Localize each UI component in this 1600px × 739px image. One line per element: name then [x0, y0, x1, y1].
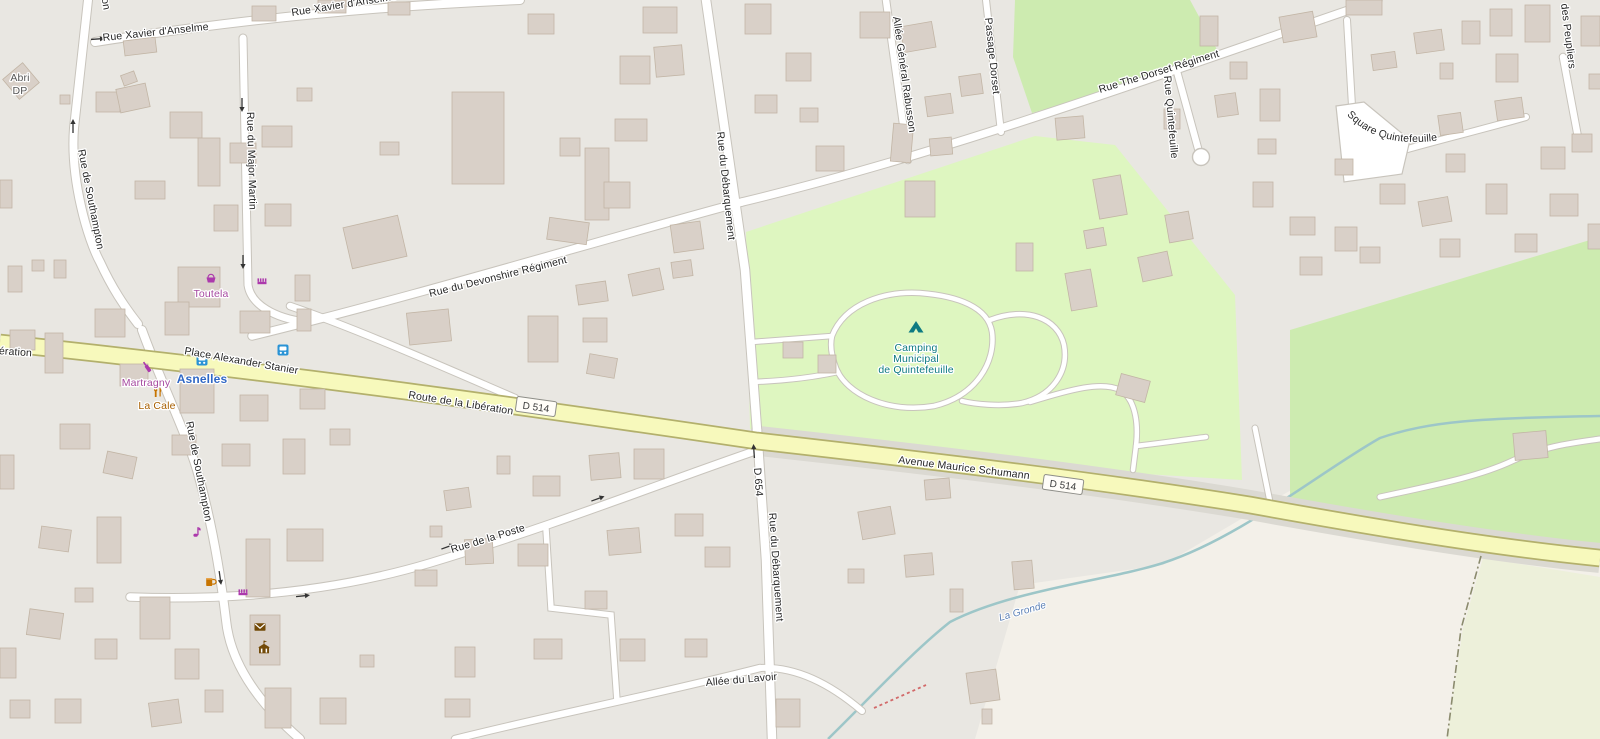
- building: [1495, 97, 1525, 121]
- building: [620, 639, 645, 661]
- building: [1012, 560, 1034, 590]
- building: [10, 700, 30, 718]
- building: [265, 688, 291, 728]
- building: [452, 92, 504, 184]
- building: [45, 333, 63, 373]
- building: [240, 311, 270, 333]
- building: [283, 439, 305, 474]
- building: [818, 355, 836, 373]
- building: [607, 528, 641, 556]
- building: [783, 342, 803, 358]
- building: [1515, 234, 1537, 252]
- building: [1200, 16, 1218, 46]
- building: [586, 354, 617, 379]
- building: [786, 53, 811, 81]
- building: [320, 698, 346, 724]
- building: [246, 539, 270, 597]
- building: [0, 180, 12, 208]
- poi-label-la-cale: La Cale: [138, 400, 175, 412]
- building: [675, 514, 703, 536]
- building: [1486, 184, 1507, 214]
- building: [175, 649, 199, 679]
- building: [1346, 0, 1382, 15]
- building: [670, 221, 704, 253]
- building: [905, 181, 935, 217]
- building-label: DP: [13, 85, 28, 97]
- cul-de-sac: [1193, 149, 1210, 166]
- town-label-asnelles: Asnelles: [177, 372, 228, 386]
- building: [0, 455, 14, 489]
- building: [533, 476, 560, 496]
- building: [96, 92, 120, 112]
- building: [982, 709, 992, 724]
- building: [198, 138, 220, 186]
- building: [1550, 194, 1578, 216]
- building: [39, 526, 72, 552]
- building: [380, 142, 399, 155]
- street-label: D 654: [751, 467, 765, 497]
- post-office-envelope-icon: [255, 623, 266, 631]
- building: [966, 669, 1000, 704]
- building: [755, 95, 777, 113]
- building: [705, 547, 730, 567]
- building: [860, 12, 890, 38]
- building: [1260, 89, 1280, 121]
- building: [1253, 182, 1273, 207]
- building: [1335, 159, 1353, 175]
- building: [140, 597, 170, 639]
- building: [95, 639, 117, 659]
- building: [950, 589, 963, 612]
- building: [1016, 243, 1033, 271]
- building: [75, 588, 93, 602]
- building: [745, 4, 771, 34]
- building: [178, 267, 220, 307]
- building: [8, 266, 22, 292]
- building: [1462, 21, 1480, 44]
- building: [1490, 9, 1512, 36]
- building: [1525, 5, 1550, 42]
- building: [444, 487, 472, 510]
- building: [1446, 154, 1465, 172]
- building: [1414, 29, 1445, 54]
- building: [904, 553, 934, 577]
- building: [26, 609, 63, 639]
- building: [1215, 93, 1239, 118]
- building: [135, 181, 165, 199]
- building: [576, 281, 608, 305]
- building: [528, 316, 558, 362]
- map-viewport[interactable]: D 514 D 514 Rue Xavier d'Anselme Rue Xav…: [0, 0, 1600, 739]
- building: [1371, 51, 1397, 70]
- building: [287, 529, 323, 561]
- building: [1290, 217, 1315, 235]
- building: [265, 204, 291, 226]
- building: [634, 449, 664, 479]
- building: [1572, 134, 1592, 152]
- building: [388, 2, 410, 15]
- building: [1084, 227, 1107, 248]
- building: [214, 205, 238, 231]
- building: [959, 74, 984, 97]
- bus-stop-icon: [278, 345, 289, 356]
- building: [297, 309, 311, 331]
- building: [528, 14, 554, 34]
- building: [671, 260, 693, 279]
- map-canvas[interactable]: D 514 D 514 Rue Xavier d'Anselme Rue Xav…: [0, 0, 1600, 739]
- building: [95, 309, 125, 337]
- building: [534, 639, 562, 659]
- building: [360, 655, 374, 667]
- building: [148, 699, 181, 727]
- building: [1230, 62, 1247, 79]
- building: [816, 146, 844, 171]
- building: [615, 119, 647, 141]
- building: [297, 88, 312, 101]
- building: [262, 126, 292, 147]
- building: [585, 591, 607, 609]
- building: [430, 526, 442, 537]
- building: [929, 137, 952, 156]
- building: [925, 93, 954, 116]
- building: [858, 506, 895, 539]
- building: [1541, 147, 1565, 169]
- building: [54, 260, 66, 278]
- building: [589, 453, 621, 481]
- building: [497, 456, 510, 474]
- building: [1440, 63, 1453, 79]
- building: [1165, 211, 1193, 243]
- building: [222, 444, 250, 466]
- building: [1335, 227, 1357, 251]
- building: [1496, 54, 1518, 82]
- building: [205, 690, 223, 712]
- building: [330, 429, 350, 445]
- building: [1055, 116, 1085, 140]
- poi-label-martragny: Martragny: [122, 377, 171, 389]
- building: [170, 112, 202, 138]
- building: [60, 95, 70, 104]
- building: [0, 648, 16, 678]
- building: [1300, 257, 1322, 275]
- building: [924, 478, 951, 500]
- poi-label-toutela: Toutela: [194, 288, 229, 300]
- building: [1438, 112, 1464, 135]
- building: [518, 544, 548, 566]
- building: [1513, 431, 1548, 461]
- building: [620, 56, 650, 84]
- building: [1589, 74, 1600, 89]
- poi-label-camping: de Quintefeuille: [878, 364, 953, 376]
- building: [1581, 16, 1600, 46]
- building: [1588, 224, 1600, 249]
- building: [604, 182, 630, 208]
- building: [848, 569, 864, 583]
- building: [455, 647, 475, 677]
- building: [252, 6, 276, 21]
- building: [1380, 184, 1405, 204]
- building: [685, 639, 707, 657]
- building: [1279, 11, 1317, 43]
- street-label: Rue du Major Martin: [244, 112, 259, 210]
- building: [240, 395, 268, 421]
- building: [55, 699, 81, 723]
- building: [654, 45, 685, 77]
- building: [1440, 239, 1460, 257]
- building: [583, 318, 607, 342]
- building: [800, 108, 818, 122]
- building: [1418, 197, 1452, 227]
- building: [295, 275, 310, 301]
- building: [250, 615, 280, 665]
- building: [445, 699, 470, 717]
- building: [32, 260, 44, 271]
- building: [643, 7, 677, 33]
- building: [560, 138, 580, 156]
- building: [776, 699, 800, 727]
- building: [165, 302, 189, 335]
- building: [1360, 247, 1380, 263]
- building-label: Abri: [10, 72, 29, 84]
- building: [97, 517, 121, 563]
- building: [300, 389, 325, 409]
- building: [415, 570, 437, 586]
- building: [1258, 139, 1276, 154]
- building: [60, 424, 90, 449]
- building: [406, 309, 451, 345]
